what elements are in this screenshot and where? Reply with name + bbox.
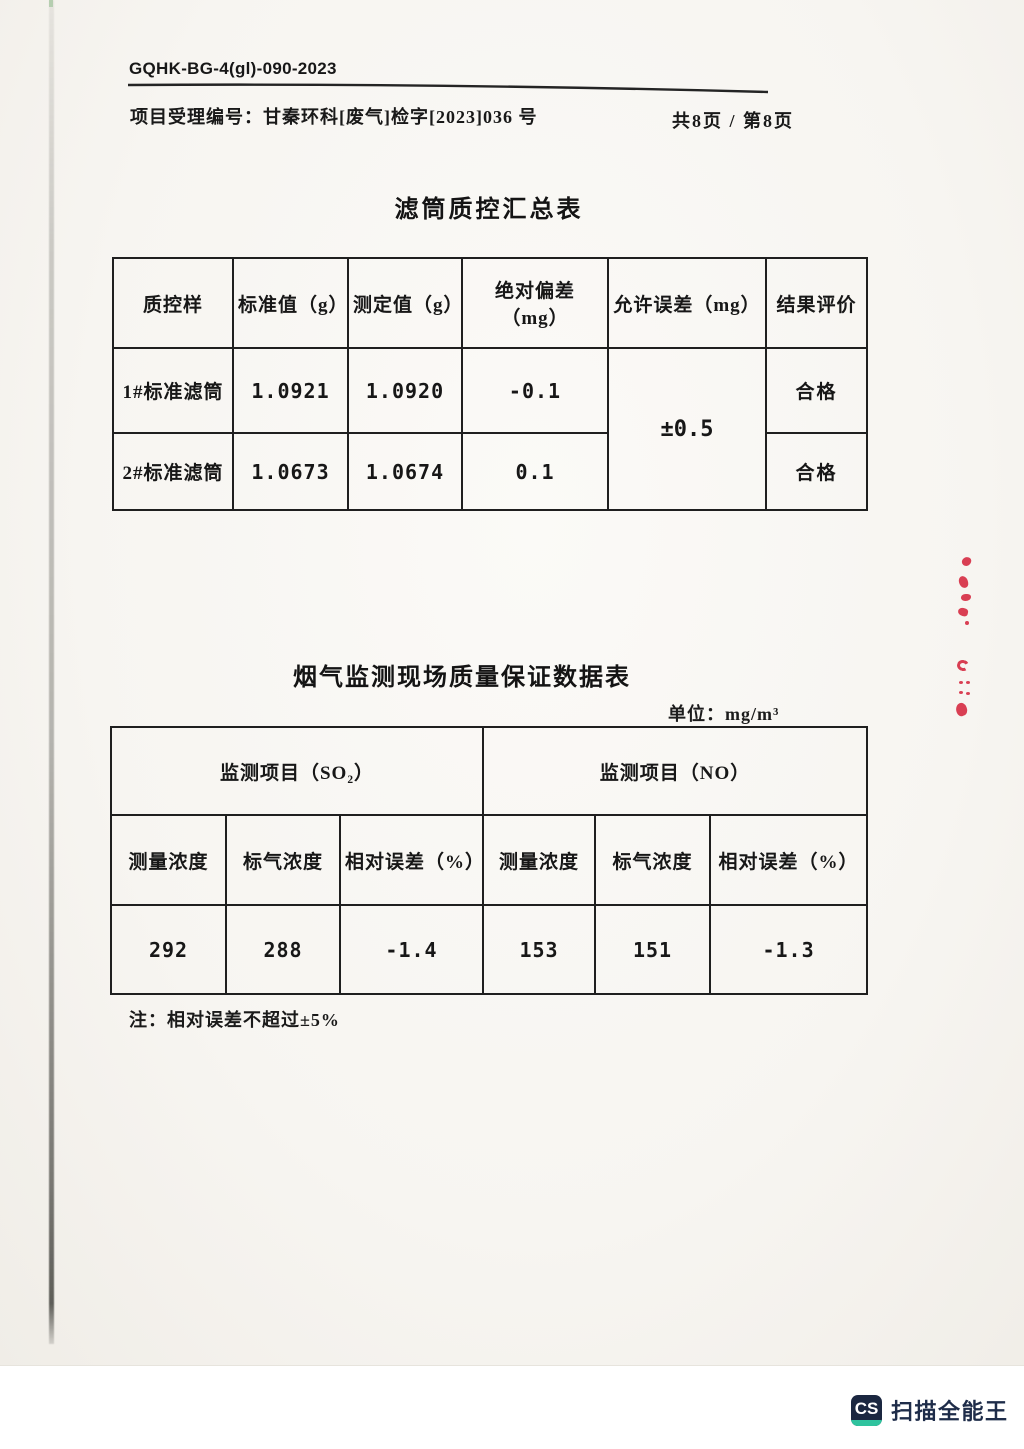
scanned-report-page: GQHK-BG-4(gl)-090-2023 项目受理编号：甘秦环科[废气]检字… — [0, 0, 1024, 1449]
subheader-measured-no: 测量浓度 — [483, 815, 595, 905]
qa-group-header-row: 监测项目（SO₂） 监测项目（NO） — [111, 727, 867, 815]
unit-label: 单位：mg/m³ — [668, 700, 779, 726]
red-stamp-fragment — [966, 692, 970, 695]
qa-values-row: 292 288 -1.4 153 151 -1.3 — [111, 905, 867, 994]
doc-code: GQHK-BG-4(gl)-090-2023 — [129, 59, 337, 79]
col-header-allowed-error: 允许误差（mg） — [608, 258, 766, 348]
value-measured-so2: 292 — [111, 905, 226, 994]
cell-standard-2: 1.0673 — [233, 433, 348, 510]
value-standard-no: 151 — [595, 905, 710, 994]
camscanner-app-name: 扫描全能王 — [891, 1394, 1009, 1426]
subheader-measured-so2: 测量浓度 — [111, 815, 226, 905]
col-header-result: 结果评价 — [766, 258, 867, 348]
cell-result-2: 合格 — [766, 433, 867, 510]
qa-subheader-row: 测量浓度 标气浓度 相对误差（%） 测量浓度 标气浓度 相对误差（%） — [111, 815, 867, 905]
cell-allowed-error: ±0.5 — [608, 348, 766, 510]
value-rel-error-no: -1.3 — [710, 905, 867, 994]
red-stamp-fragment — [959, 681, 963, 684]
col-header-absolute-deviation: 绝对偏差（mg） — [462, 258, 608, 348]
cell-result-1: 合格 — [766, 348, 867, 433]
col-header-standard-value: 标准值（g） — [233, 258, 348, 348]
subheader-standard-no: 标气浓度 — [595, 815, 710, 905]
scan-edge-shadow — [49, 0, 54, 1344]
cell-measured-1: 1.0920 — [348, 348, 462, 433]
cell-deviation-1: -0.1 — [462, 348, 608, 433]
filter-qc-table-title: 滤筒质控汇总表 — [112, 189, 866, 224]
value-measured-no: 153 — [483, 905, 595, 994]
scan-edge-speck — [49, 0, 53, 7]
col-header-sample: 质控样 — [113, 258, 233, 348]
flue-gas-qa-table: 监测项目（SO₂） 监测项目（NO） 测量浓度 标气浓度 相对误差（%） 测量浓… — [110, 726, 868, 995]
flue-gas-qa-table-title: 烟气监测现场质量保证数据表 — [84, 657, 840, 692]
camscanner-logo-letters: CS — [851, 1396, 882, 1421]
project-acceptance-number: 项目受理编号：甘秦环科[废气]检字[2023]036 号 — [130, 103, 537, 129]
group-header-no: 监测项目（NO） — [483, 727, 867, 815]
red-stamp-fragment — [965, 621, 969, 625]
cell-sample-2: 2#标准滤筒 — [113, 433, 233, 510]
page-number-info: 共8页 / 第8页 — [672, 107, 794, 133]
red-stamp-fragment — [959, 691, 963, 694]
table-note: 注：相对误差不超过±5% — [129, 1006, 340, 1032]
cell-standard-1: 1.0921 — [233, 348, 348, 433]
value-rel-error-so2: -1.4 — [340, 905, 483, 994]
subheader-rel-error-no: 相对误差（%） — [710, 815, 867, 905]
filter-qc-table: 质控样 标准值（g） 测定值（g） 绝对偏差（mg） 允许误差（mg） 结果评价… — [112, 257, 868, 511]
subheader-rel-error-so2: 相对误差（%） — [340, 815, 483, 905]
camscanner-watermark: CS 扫描全能王 — [851, 1394, 1009, 1426]
group-header-so2: 监测项目（SO₂） — [111, 727, 483, 815]
red-stamp-fragment — [966, 681, 970, 684]
camscanner-logo-icon: CS — [851, 1395, 882, 1426]
cell-deviation-2: 0.1 — [462, 433, 608, 510]
col-header-measured-value: 测定值（g） — [348, 258, 462, 348]
cell-measured-2: 1.0674 — [348, 433, 462, 510]
filter-qc-header-row: 质控样 标准值（g） 测定值（g） 绝对偏差（mg） 允许误差（mg） 结果评价 — [113, 258, 867, 348]
cell-sample-1: 1#标准滤筒 — [113, 348, 233, 433]
subheader-standard-so2: 标气浓度 — [226, 815, 340, 905]
value-standard-so2: 288 — [226, 905, 340, 994]
filter-qc-row-1: 1#标准滤筒 1.0921 1.0920 -0.1 ±0.5 合格 — [113, 348, 867, 433]
